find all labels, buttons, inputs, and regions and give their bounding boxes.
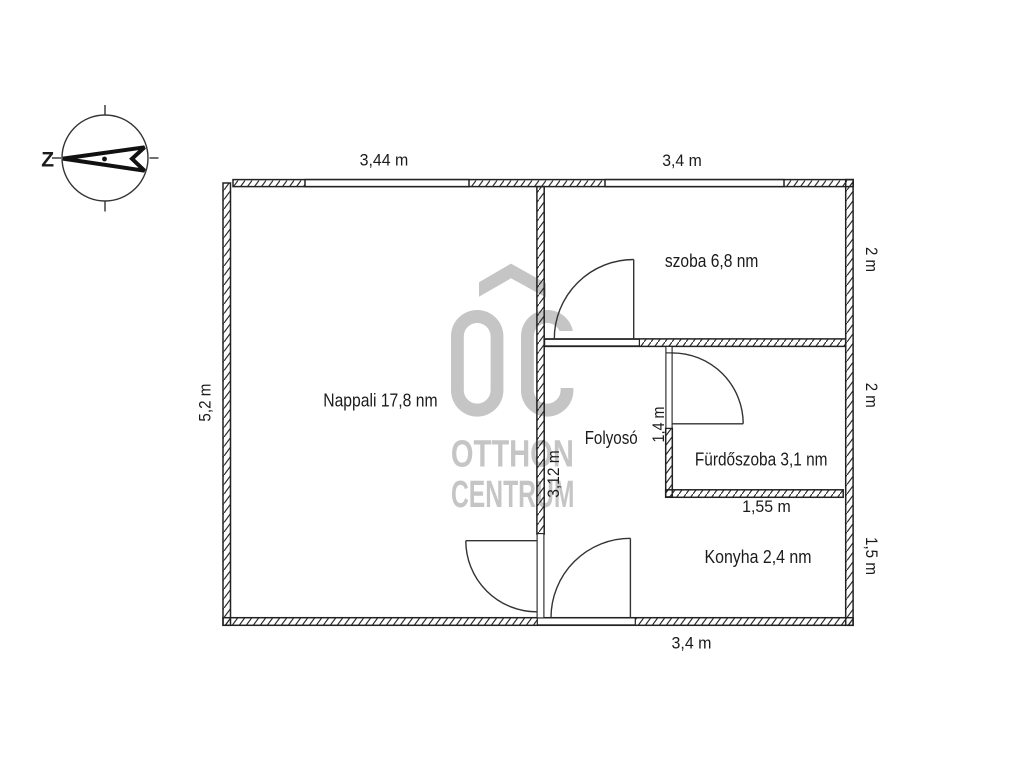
svg-text:3,12 m: 3,12 m: [544, 450, 563, 498]
svg-text:1,55 m: 1,55 m: [742, 497, 791, 516]
svg-text:2 m: 2 m: [862, 247, 881, 272]
svg-text:Folyosó: Folyosó: [585, 428, 638, 448]
svg-text:1,4 m: 1,4 m: [649, 407, 668, 443]
svg-text:3,4 m: 3,4 m: [662, 151, 702, 170]
svg-text:5,2 m: 5,2 m: [196, 384, 215, 422]
svg-text:szoba 6,8 nm: szoba 6,8 nm: [665, 251, 759, 271]
svg-text:3,44 m: 3,44 m: [360, 150, 409, 169]
svg-text:Konyha 2,4 nm: Konyha 2,4 nm: [705, 547, 812, 567]
svg-text:Nappali 17,8 nm: Nappali 17,8 nm: [323, 391, 437, 411]
svg-text:1,5 m: 1,5 m: [862, 537, 881, 575]
svg-text:3,4 m: 3,4 m: [672, 634, 712, 653]
svg-text:2 m: 2 m: [862, 383, 881, 408]
svg-text:Z: Z: [41, 149, 54, 172]
svg-text:Fürdőszoba 3,1 nm: Fürdőszoba 3,1 nm: [695, 450, 828, 470]
